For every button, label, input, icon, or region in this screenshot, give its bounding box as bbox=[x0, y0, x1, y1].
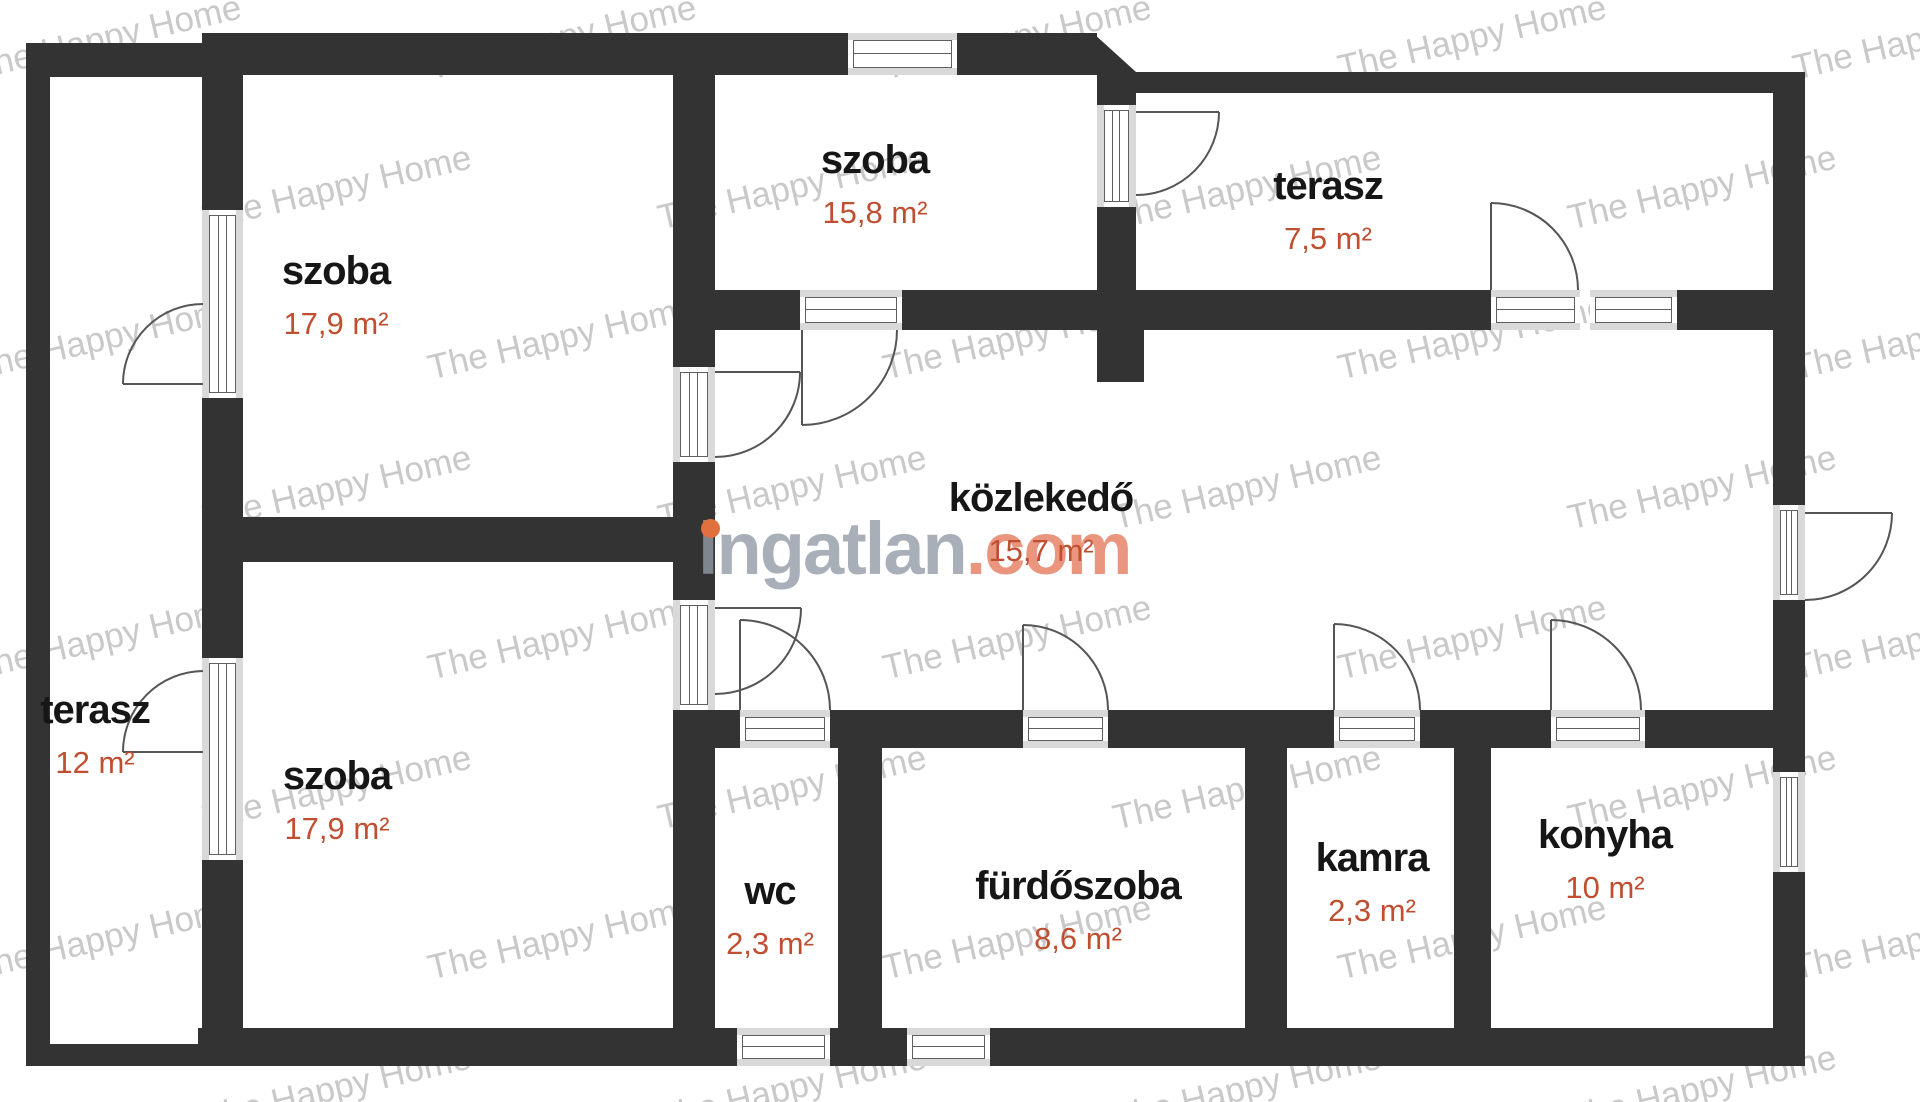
room-label-szoba-top-middle: szoba 15,8 m² bbox=[821, 140, 929, 229]
room-label-terasz-top-right: terasz 7,5 m² bbox=[1273, 166, 1383, 255]
room-label-furdoszoba: fürdőszoba 8,6 m² bbox=[975, 866, 1181, 955]
room-area: 15,8 m² bbox=[821, 197, 929, 229]
room-name: közlekedő bbox=[949, 478, 1133, 518]
room-label-kozlekedo: közlekedő 15,7 m² bbox=[949, 478, 1133, 567]
room-area: 17,9 m² bbox=[282, 308, 390, 340]
room-name: szoba bbox=[821, 140, 929, 180]
room-area: 15,7 m² bbox=[949, 535, 1133, 567]
room-name: szoba bbox=[282, 251, 390, 291]
room-name: konyha bbox=[1538, 815, 1672, 855]
room-name: fürdőszoba bbox=[975, 866, 1181, 906]
room-label-kamra: kamra 2,3 m² bbox=[1316, 838, 1429, 927]
room-area: 10 m² bbox=[1538, 872, 1672, 904]
room-label-szoba-bottom-left: szoba 17,9 m² bbox=[283, 756, 391, 845]
room-name: wc bbox=[726, 871, 814, 911]
room-area: 2,3 m² bbox=[1316, 895, 1429, 927]
room-name: terasz bbox=[1273, 166, 1383, 206]
logo-gray-text: ingatlan bbox=[698, 507, 966, 590]
room-area: 7,5 m² bbox=[1273, 223, 1383, 255]
room-area: 17,9 m² bbox=[283, 813, 391, 845]
room-label-konyha: konyha 10 m² bbox=[1538, 815, 1672, 904]
room-label-wc: wc 2,3 m² bbox=[726, 871, 814, 960]
room-area: 8,6 m² bbox=[975, 923, 1181, 955]
room-area: 12 m² bbox=[40, 747, 150, 779]
room-label-terasz-left: terasz 12 m² bbox=[40, 690, 150, 779]
room-name: szoba bbox=[283, 756, 391, 796]
floor-plan: The Happy HomeThe Happy HomeThe Happy Ho… bbox=[0, 0, 1920, 1102]
room-area: 2,3 m² bbox=[726, 928, 814, 960]
room-label-szoba-top-left: szoba 17,9 m² bbox=[282, 251, 390, 340]
room-name: kamra bbox=[1316, 838, 1429, 878]
logo-orange-dot bbox=[701, 519, 720, 538]
room-name: terasz bbox=[40, 690, 150, 730]
